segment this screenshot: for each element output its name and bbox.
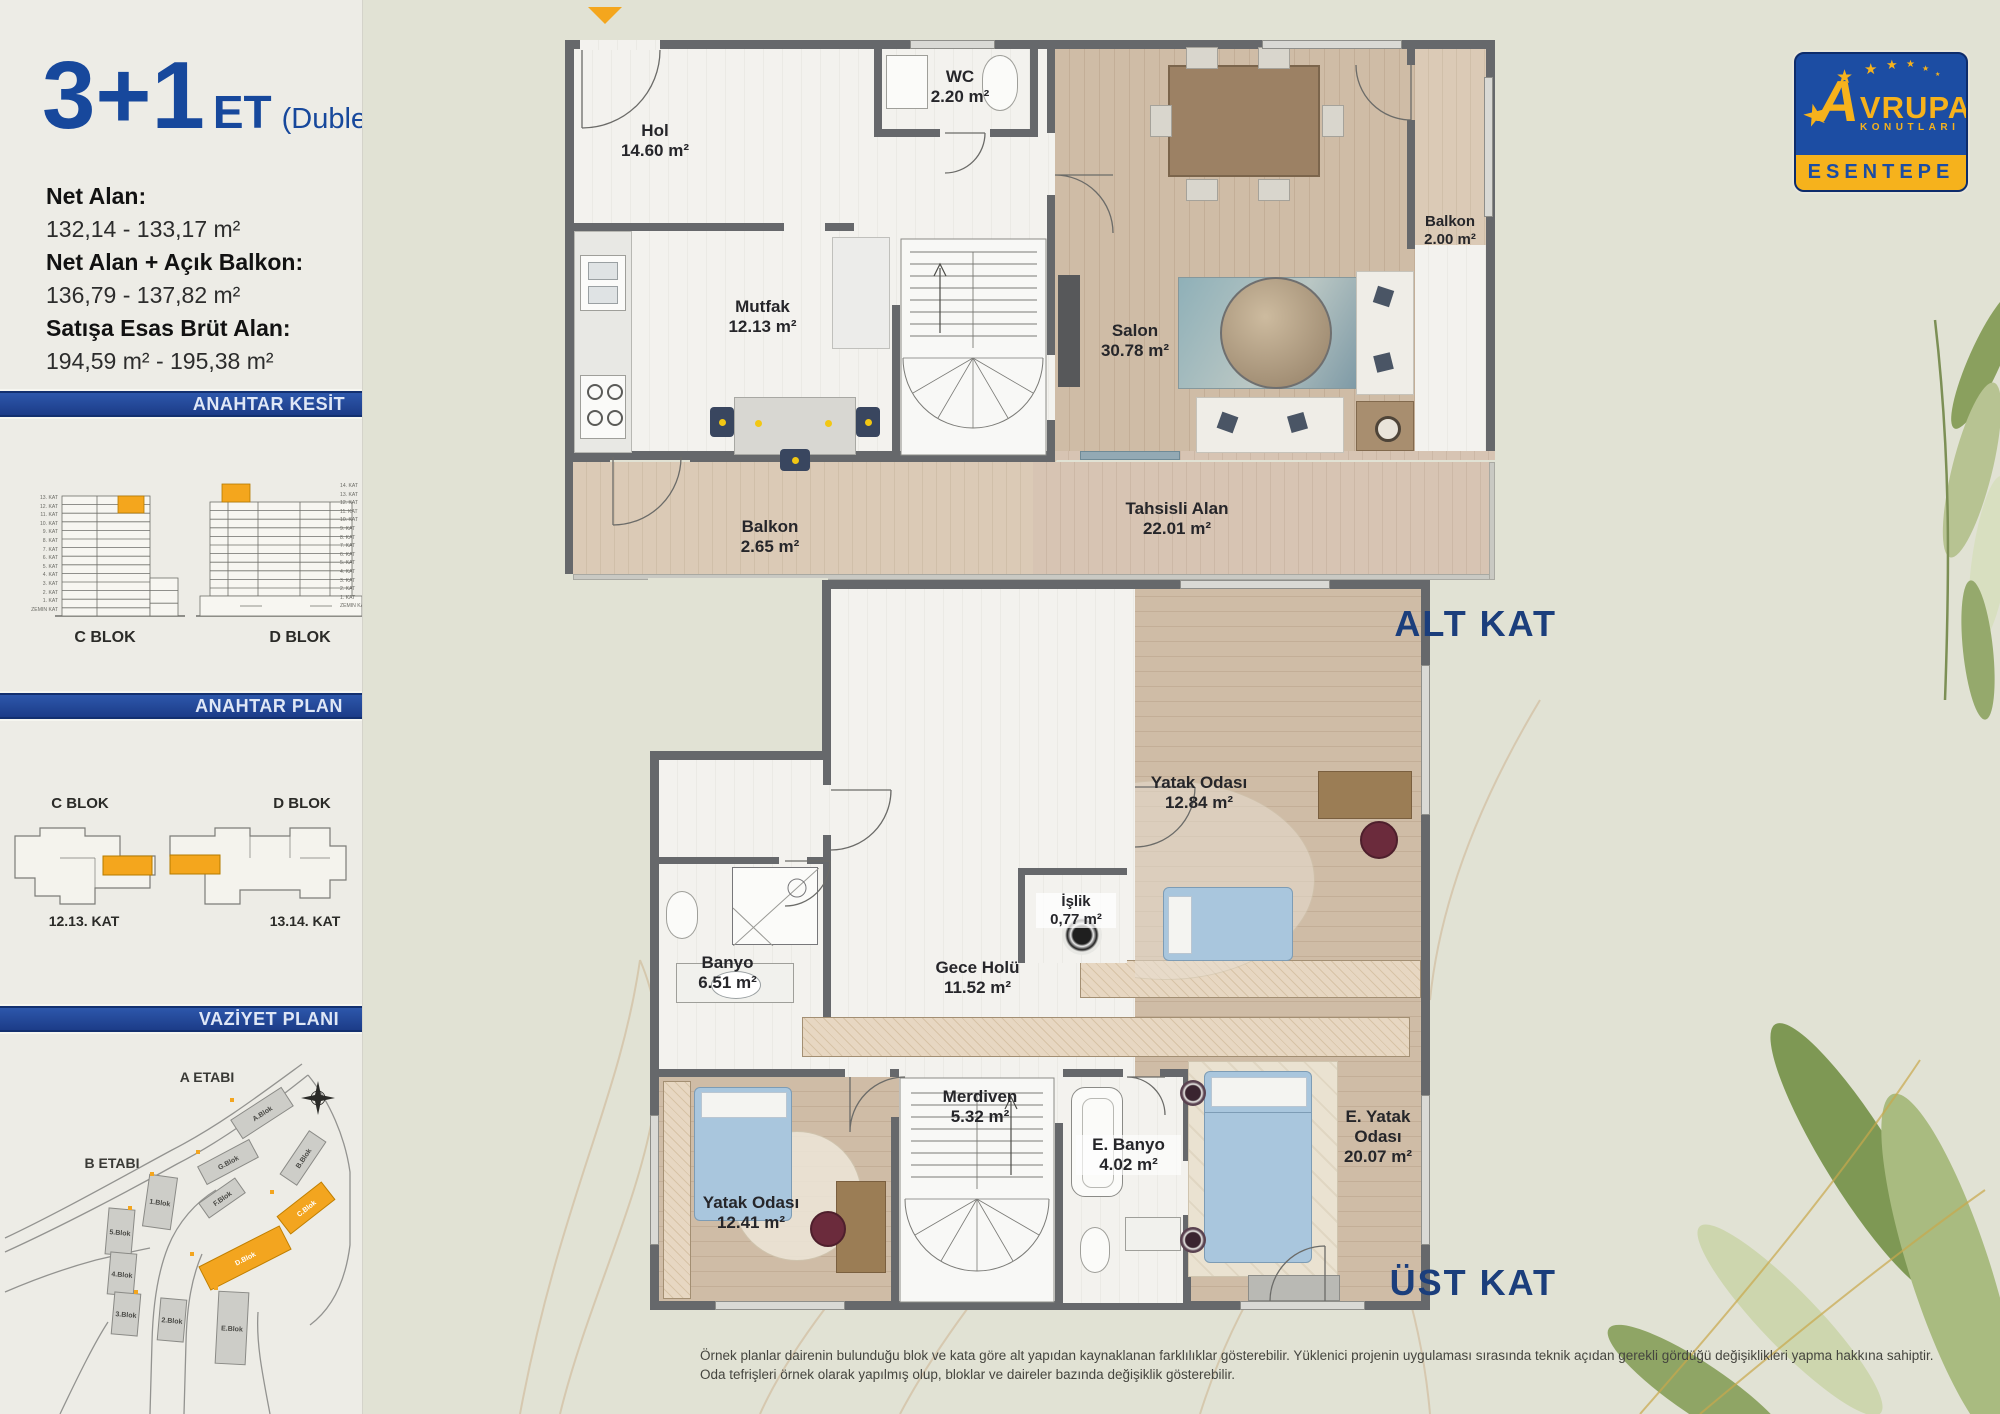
- entry-door-gap: [580, 40, 660, 50]
- wall: [892, 305, 900, 455]
- nightstand-lamp: [1180, 1080, 1206, 1106]
- toilet: [666, 891, 698, 939]
- window: [1484, 77, 1493, 217]
- star-icon: ★: [1886, 57, 1898, 73]
- site-block-f: F.Blok: [199, 1178, 245, 1218]
- anahtar-plan-title: ANAHTAR PLAN: [195, 696, 343, 717]
- ust-kat-caption: ÜST KAT: [1272, 1262, 1557, 1304]
- wall: [1047, 49, 1055, 133]
- unit-type-title: 3+1 ET (Dublex): [42, 48, 363, 144]
- unit-type-suffix: ET: [213, 85, 272, 139]
- wall: [565, 453, 573, 574]
- room-label-islik: İşlik 0,77 m²: [1036, 893, 1116, 928]
- room-label-yatak2: Yatak Odası 12.41 m²: [695, 1193, 807, 1233]
- c-blok-section: [55, 496, 185, 616]
- vaziyet-title: VAZİYET PLANI: [199, 1009, 339, 1030]
- site-block-2: 2.Blok: [157, 1298, 187, 1342]
- dining-chair: [1186, 179, 1218, 201]
- kitchen-chair: [856, 407, 880, 437]
- wall: [822, 580, 831, 760]
- key-plan-d-floor: 13.14. KAT: [270, 913, 341, 929]
- dining-chair: [1258, 179, 1290, 201]
- bed: [1163, 887, 1293, 961]
- wall: [874, 129, 940, 137]
- desk-chair: [810, 1211, 846, 1247]
- stove: [580, 375, 626, 439]
- window: [1421, 665, 1430, 815]
- dining-table: [1168, 65, 1320, 177]
- wall: [890, 1069, 899, 1077]
- section-banner-anahtar-kesit: ANAHTAR KESİT: [0, 391, 363, 417]
- kitchen-table: [734, 397, 856, 455]
- site-block-c: C.Blok: [277, 1182, 335, 1234]
- terrace-glass-door: [1080, 451, 1180, 460]
- site-block-g: G.Blok: [198, 1140, 259, 1185]
- sofa: [1196, 397, 1344, 453]
- window: [1262, 40, 1402, 49]
- wall: [1160, 1069, 1191, 1077]
- wall: [823, 835, 831, 1017]
- window: [1180, 580, 1330, 589]
- brand-logo: ★ ★ ★ ★ ★ ★ ★ A VRUPA KONUTLARI ESENTEPE: [1794, 52, 1968, 192]
- room-label-salon: Salon 30.78 m²: [1085, 321, 1185, 361]
- svg-text:E.Blok: E.Blok: [221, 1325, 243, 1333]
- bed: [1204, 1071, 1312, 1263]
- key-plan-drawing: C BLOK D BLOK 12.13. KAT 13.14. KAT: [0, 728, 362, 968]
- site-block-b: B.Blok: [280, 1131, 326, 1185]
- etap-b-label: B ETABI: [85, 1155, 140, 1171]
- closet: [663, 1081, 691, 1299]
- key-plan-d-label: D BLOK: [273, 795, 331, 812]
- tahsisli-alan-floor: [1033, 462, 1495, 574]
- site-block-e: E.Blok: [215, 1291, 249, 1364]
- wall: [650, 751, 831, 760]
- anahtar-kesit-title: ANAHTAR KESİT: [193, 394, 345, 415]
- section-banner-vaziyet: VAZİYET PLANI: [0, 1006, 363, 1032]
- c-blok-floor-labels: 13. KAT12. KAT11. KAT10. KAT9. KAT8. KAT…: [18, 494, 58, 614]
- staircase: [900, 238, 1047, 456]
- room-label-balkon-200: Balkon 2.00 m²: [1410, 213, 1490, 248]
- brand-sub: KONUTLARI: [1860, 122, 1959, 133]
- round-table: [1220, 277, 1332, 389]
- wall: [1030, 49, 1038, 137]
- room-label-mutfak: Mutfak 12.13 m²: [710, 297, 815, 337]
- kitchen-chair: [780, 449, 810, 471]
- tv-unit: [1058, 275, 1080, 387]
- desk-chair: [1360, 821, 1398, 859]
- wardrobe: [1080, 960, 1421, 998]
- nightstand-lamp: [1180, 1227, 1206, 1253]
- room-label-tahsisli-alan: Tahsisli Alan 22.01 m²: [1112, 499, 1242, 539]
- gross-area-label: Satışa Esas Brüt Alan:: [46, 312, 303, 345]
- site-block-d: D.Blok: [199, 1226, 291, 1290]
- disclaimer-line1: Örnek planlar dairenin bulunduğu blok ve…: [700, 1346, 1995, 1365]
- key-plan-c-label: C BLOK: [51, 795, 109, 812]
- room-label-hol: Hol 14.60 m²: [605, 121, 705, 161]
- wall: [659, 857, 779, 864]
- brand-logo-upper: ★ ★ ★ ★ ★ ★ ★ A VRUPA KONUTLARI: [1796, 54, 1966, 155]
- site-block-a: A.Blok: [231, 1087, 293, 1138]
- dining-chair: [1258, 47, 1290, 69]
- wall: [1407, 49, 1415, 65]
- dining-chair: [1322, 105, 1344, 137]
- site-block-5: 5.Blok: [105, 1208, 135, 1256]
- window: [715, 1301, 845, 1310]
- room-label-banyo: Banyo 6.51 m²: [675, 953, 780, 993]
- wall: [874, 49, 882, 137]
- plan-cutout: [648, 578, 828, 752]
- d-blok-section: [196, 484, 362, 616]
- site-block-4: 4.Blok: [107, 1252, 137, 1296]
- right-edge-leaves: [1931, 285, 2000, 721]
- key-plan-c-floor: 12.13. KAT: [49, 913, 120, 929]
- etap-a-label: A ETABI: [180, 1069, 234, 1085]
- desk: [1318, 771, 1412, 819]
- wall: [1055, 1123, 1063, 1306]
- net-area-value: 132,14 - 133,17 m²: [46, 213, 303, 246]
- brand-rest: VRUPA: [1860, 90, 1968, 126]
- area-summary: Net Alan: 132,14 - 133,17 m² Net Alan + …: [46, 180, 303, 378]
- wall: [990, 129, 1038, 137]
- room-label-balkon-265: Balkon 2.65 m²: [710, 517, 830, 557]
- wall: [1018, 868, 1127, 875]
- wall: [565, 453, 610, 462]
- alt-kat-caption: ALT KAT: [1272, 603, 1557, 645]
- site-block-3: 3.Blok: [111, 1292, 141, 1336]
- wall: [1063, 1069, 1123, 1077]
- disclaimer: Örnek planlar dairenin bulunduğu blok ve…: [700, 1346, 1995, 1384]
- bathroom-sink: [1125, 1217, 1181, 1251]
- side-table: [1356, 401, 1414, 451]
- site-block-1: 1.Blok: [143, 1174, 178, 1229]
- site-plan: A.Blok G.Blok B.Blok C.Blok 1.Blok: [0, 1040, 362, 1414]
- kitchen-chair: [710, 407, 734, 437]
- site-roads: [5, 1064, 350, 1414]
- window: [910, 40, 995, 49]
- window: [650, 1115, 659, 1245]
- star-icon: ★: [1922, 64, 1929, 73]
- c-blok-label: C BLOK: [74, 629, 136, 646]
- unit-type-main: 3+1: [42, 48, 205, 144]
- room-label-e-banyo: E. Banyo 4.02 m²: [1076, 1135, 1181, 1175]
- unit-type-note: (Dublex): [282, 103, 363, 136]
- d-blok-label: D BLOK: [269, 629, 331, 646]
- net-balcony-label: Net Alan + Açık Balkon:: [46, 246, 303, 279]
- star-icon: ★: [1906, 59, 1915, 70]
- room-label-gece-holu: Gece Holü 11.52 m²: [915, 958, 1040, 998]
- dining-chair: [1186, 47, 1218, 69]
- entrance-arrow-icon: [588, 7, 622, 24]
- dining-chair: [1150, 105, 1172, 137]
- gross-area-value: 194,59 m² - 195,38 m²: [46, 345, 303, 378]
- shower: [732, 867, 818, 945]
- room-label-wc: WC 2.20 m²: [910, 67, 1010, 107]
- room-label-e-yatak: E. Yatak Odası 20.07 m²: [1328, 1107, 1428, 1167]
- project-name-band: ESENTEPE: [1796, 155, 1966, 190]
- brand-wordmark: A VRUPA: [1818, 76, 1968, 128]
- d-blok-floor-labels: 14. KAT13. KAT12. KAT11. KAT10. KAT9. KA…: [340, 482, 363, 611]
- brochure-page: 3+1 ET (Dublex) Net Alan: 132,14 - 133,1…: [0, 0, 2000, 1414]
- ust-kat-plan: Yatak Odası 12.84 m² İşlik 0,77 m² Banyo…: [480, 575, 1442, 1330]
- wall: [574, 223, 784, 231]
- disclaimer-line2: Oda tefrişleri örnek olarak yapılmış olu…: [700, 1365, 1995, 1384]
- wall: [825, 223, 854, 231]
- terrace-parapet-right: [1489, 462, 1495, 580]
- brand-letter-a: A: [1813, 76, 1864, 128]
- wall: [1018, 868, 1025, 963]
- section-banner-anahtar-plan: ANAHTAR PLAN: [0, 693, 363, 719]
- net-area-label: Net Alan:: [46, 180, 303, 213]
- c-highlight-unit: [103, 856, 152, 875]
- room-label-yatak1: Yatak Odası 12.84 m²: [1140, 773, 1258, 813]
- wall: [1047, 420, 1055, 451]
- wall: [823, 760, 831, 785]
- wall: [659, 1069, 845, 1077]
- toilet: [1080, 1227, 1110, 1273]
- sidebar: 3+1 ET (Dublex) Net Alan: 132,14 - 133,1…: [0, 0, 363, 1414]
- wall: [1047, 195, 1055, 355]
- d-highlight-unit: [170, 855, 220, 874]
- wall: [891, 1117, 899, 1306]
- alt-kat-plan: WC 2.20 m² Hol 14.60 m² Mutfak 12.13 m² …: [480, 25, 1515, 600]
- kitchen-sink: [580, 255, 626, 311]
- net-balcony-value: 136,79 - 137,82 m²: [46, 279, 303, 312]
- wardrobe: [802, 1017, 1410, 1057]
- project-name: ESENTEPE: [1808, 161, 1955, 184]
- sofa: [1356, 271, 1414, 395]
- room-label-merdiven: Merdiven 5.32 m²: [920, 1087, 1040, 1127]
- kitchen-cabinet: [832, 237, 890, 349]
